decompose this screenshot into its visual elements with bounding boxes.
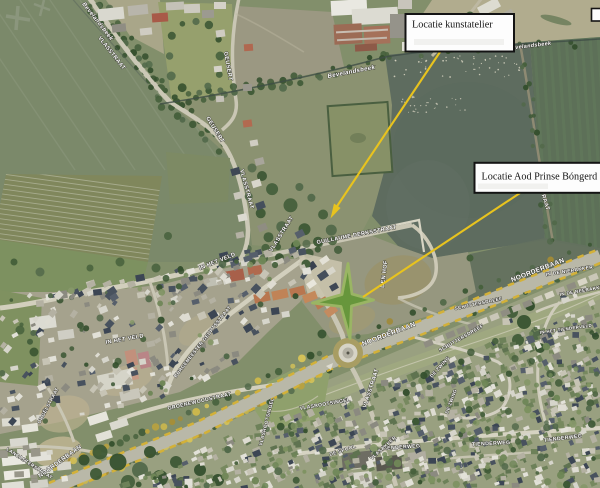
svg-text:Locatie Aod Prinse Bóngerd: Locatie Aod Prinse Bóngerd — [482, 172, 598, 183]
svg-text:Locatie kunstatelier: Locatie kunstatelier — [412, 20, 493, 31]
